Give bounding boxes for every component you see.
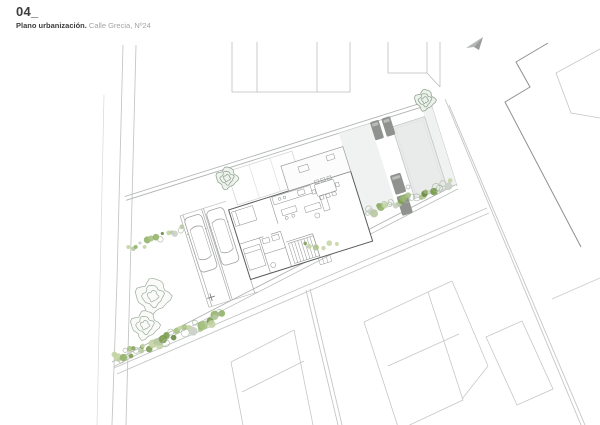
shrub-icon — [218, 309, 226, 317]
street-left-far — [97, 95, 104, 425]
north-arrow-icon — [466, 37, 483, 50]
street-right-outer — [445, 99, 581, 425]
vegetation-strip-south — [108, 308, 230, 366]
neighbor-building-b — [388, 42, 440, 87]
parcel-bottom-center — [364, 281, 488, 425]
tree-icon — [216, 167, 239, 190]
neighbor-building-dark-outline — [505, 43, 581, 247]
plan-sheet: 04_ Plano urbanización. Calle Grecia, Nº… — [0, 0, 600, 425]
site-plan-drawing — [0, 0, 600, 425]
street-ns-left — [306, 290, 338, 425]
street-ns-right — [310, 289, 342, 425]
street-right-inner — [449, 105, 585, 425]
parcel-bottom-left — [231, 330, 313, 425]
vegetation-strip-west — [125, 224, 187, 254]
street-left-outer — [112, 45, 123, 425]
neighbor-corner-ne — [556, 49, 600, 118]
tree-icon — [135, 278, 172, 315]
neighbor-parcels-bottom — [231, 281, 553, 425]
main-parcel — [66, 100, 480, 367]
neighbor-building-a — [232, 42, 350, 92]
shrub-icon — [179, 224, 185, 230]
pool-ladder-icon — [405, 184, 410, 189]
shrub-icon — [126, 245, 131, 250]
shrub-icon — [142, 245, 147, 250]
shrub-icon — [160, 232, 164, 236]
shrub-icon — [128, 353, 134, 359]
neighbor-line-far-right — [552, 278, 600, 299]
shrub-icon — [138, 241, 142, 245]
tree-icon — [131, 311, 161, 341]
